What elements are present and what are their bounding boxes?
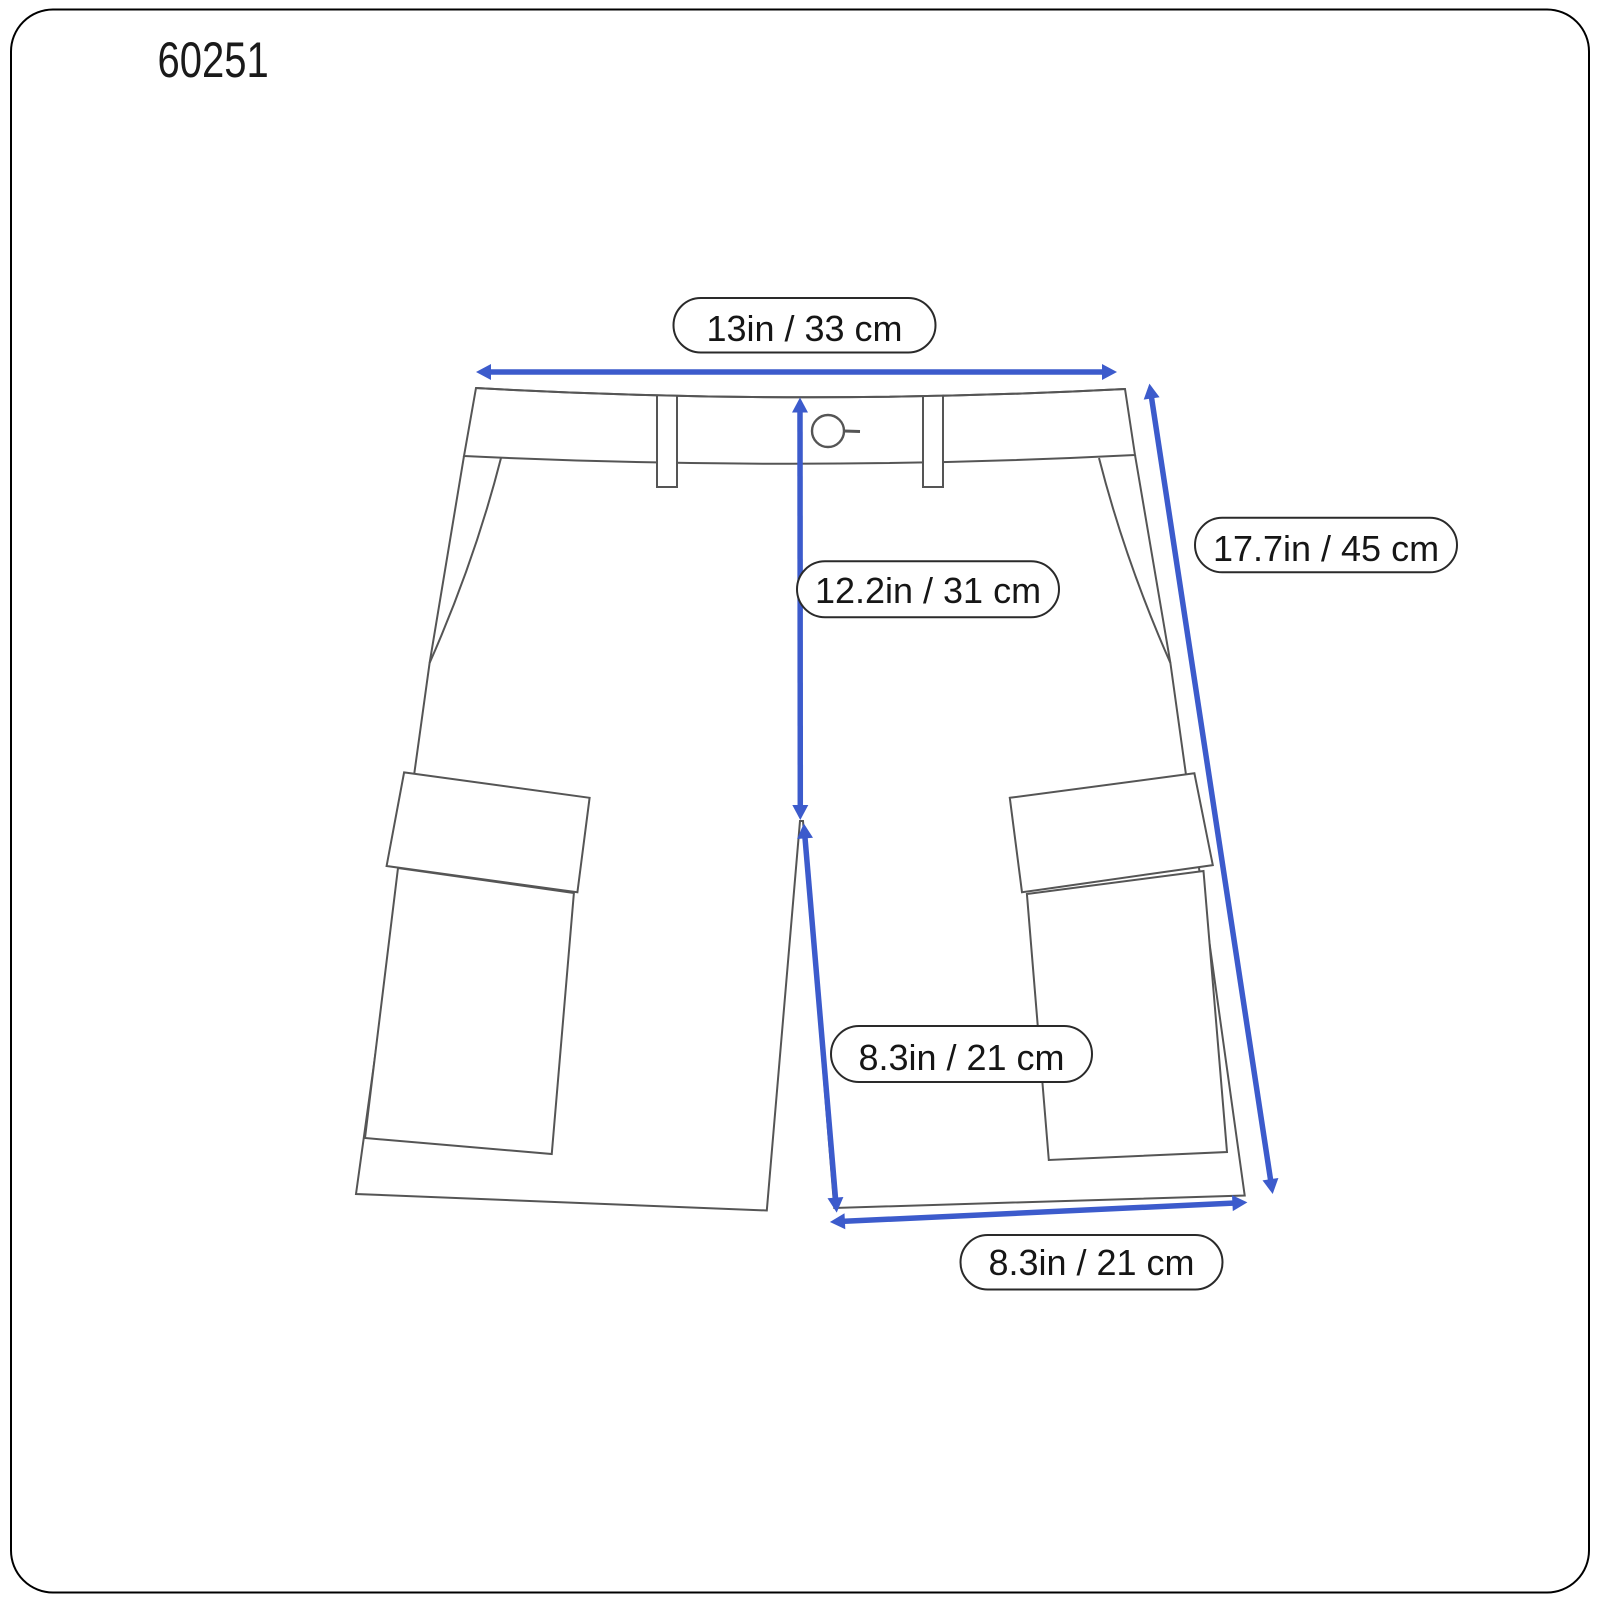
svg-text:17.7in / 45 cm: 17.7in / 45 cm: [1213, 528, 1439, 569]
svg-text:8.3in / 21 cm: 8.3in / 21 cm: [858, 1037, 1064, 1078]
svg-text:60251: 60251: [158, 32, 269, 88]
svg-text:8.3in / 21 cm: 8.3in / 21 cm: [988, 1242, 1194, 1283]
svg-text:13in / 33 cm: 13in / 33 cm: [706, 308, 902, 349]
svg-text:12.2in / 31 cm: 12.2in / 31 cm: [815, 570, 1041, 611]
